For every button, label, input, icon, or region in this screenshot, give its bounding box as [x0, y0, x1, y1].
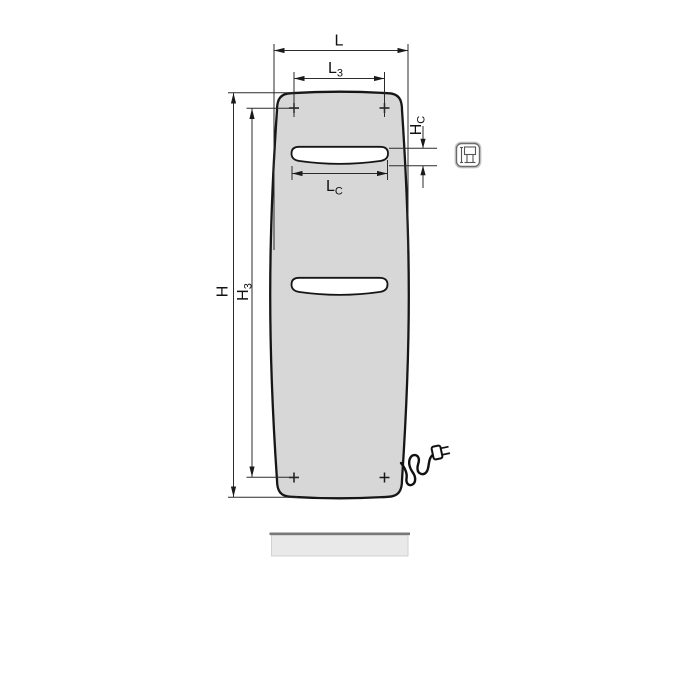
- arrowhead: [231, 487, 236, 498]
- arrowhead: [374, 76, 385, 81]
- radiator-panel: [270, 92, 409, 499]
- connection-badge-icon: [455, 142, 481, 168]
- dim-label-H3: H3: [235, 283, 255, 301]
- power-plug-icon: [431, 444, 450, 460]
- arrowhead: [249, 467, 254, 478]
- drawing-canvas: L L3 LC H: [0, 0, 700, 700]
- arrowhead: [294, 76, 305, 81]
- dim-label-H: H: [215, 286, 232, 298]
- radiator-dimension-drawing: L L3 LC H: [0, 0, 700, 700]
- arrowhead: [249, 109, 254, 120]
- dim-label-L: L: [335, 33, 344, 50]
- arrowhead: [420, 166, 425, 176]
- dim-label-L3: L3: [328, 60, 343, 80]
- upper-slot: [292, 147, 389, 164]
- lower-slot: [292, 278, 388, 295]
- floor-surface: [272, 535, 409, 556]
- arrowhead: [398, 48, 409, 53]
- dim-label-HC: HC: [408, 116, 428, 136]
- arrowhead: [420, 139, 425, 149]
- floor-strip: [270, 534, 411, 556]
- arrowhead: [231, 93, 236, 104]
- arrowhead: [274, 48, 285, 53]
- cable-curve: [401, 454, 435, 485]
- power-cable: [401, 444, 451, 486]
